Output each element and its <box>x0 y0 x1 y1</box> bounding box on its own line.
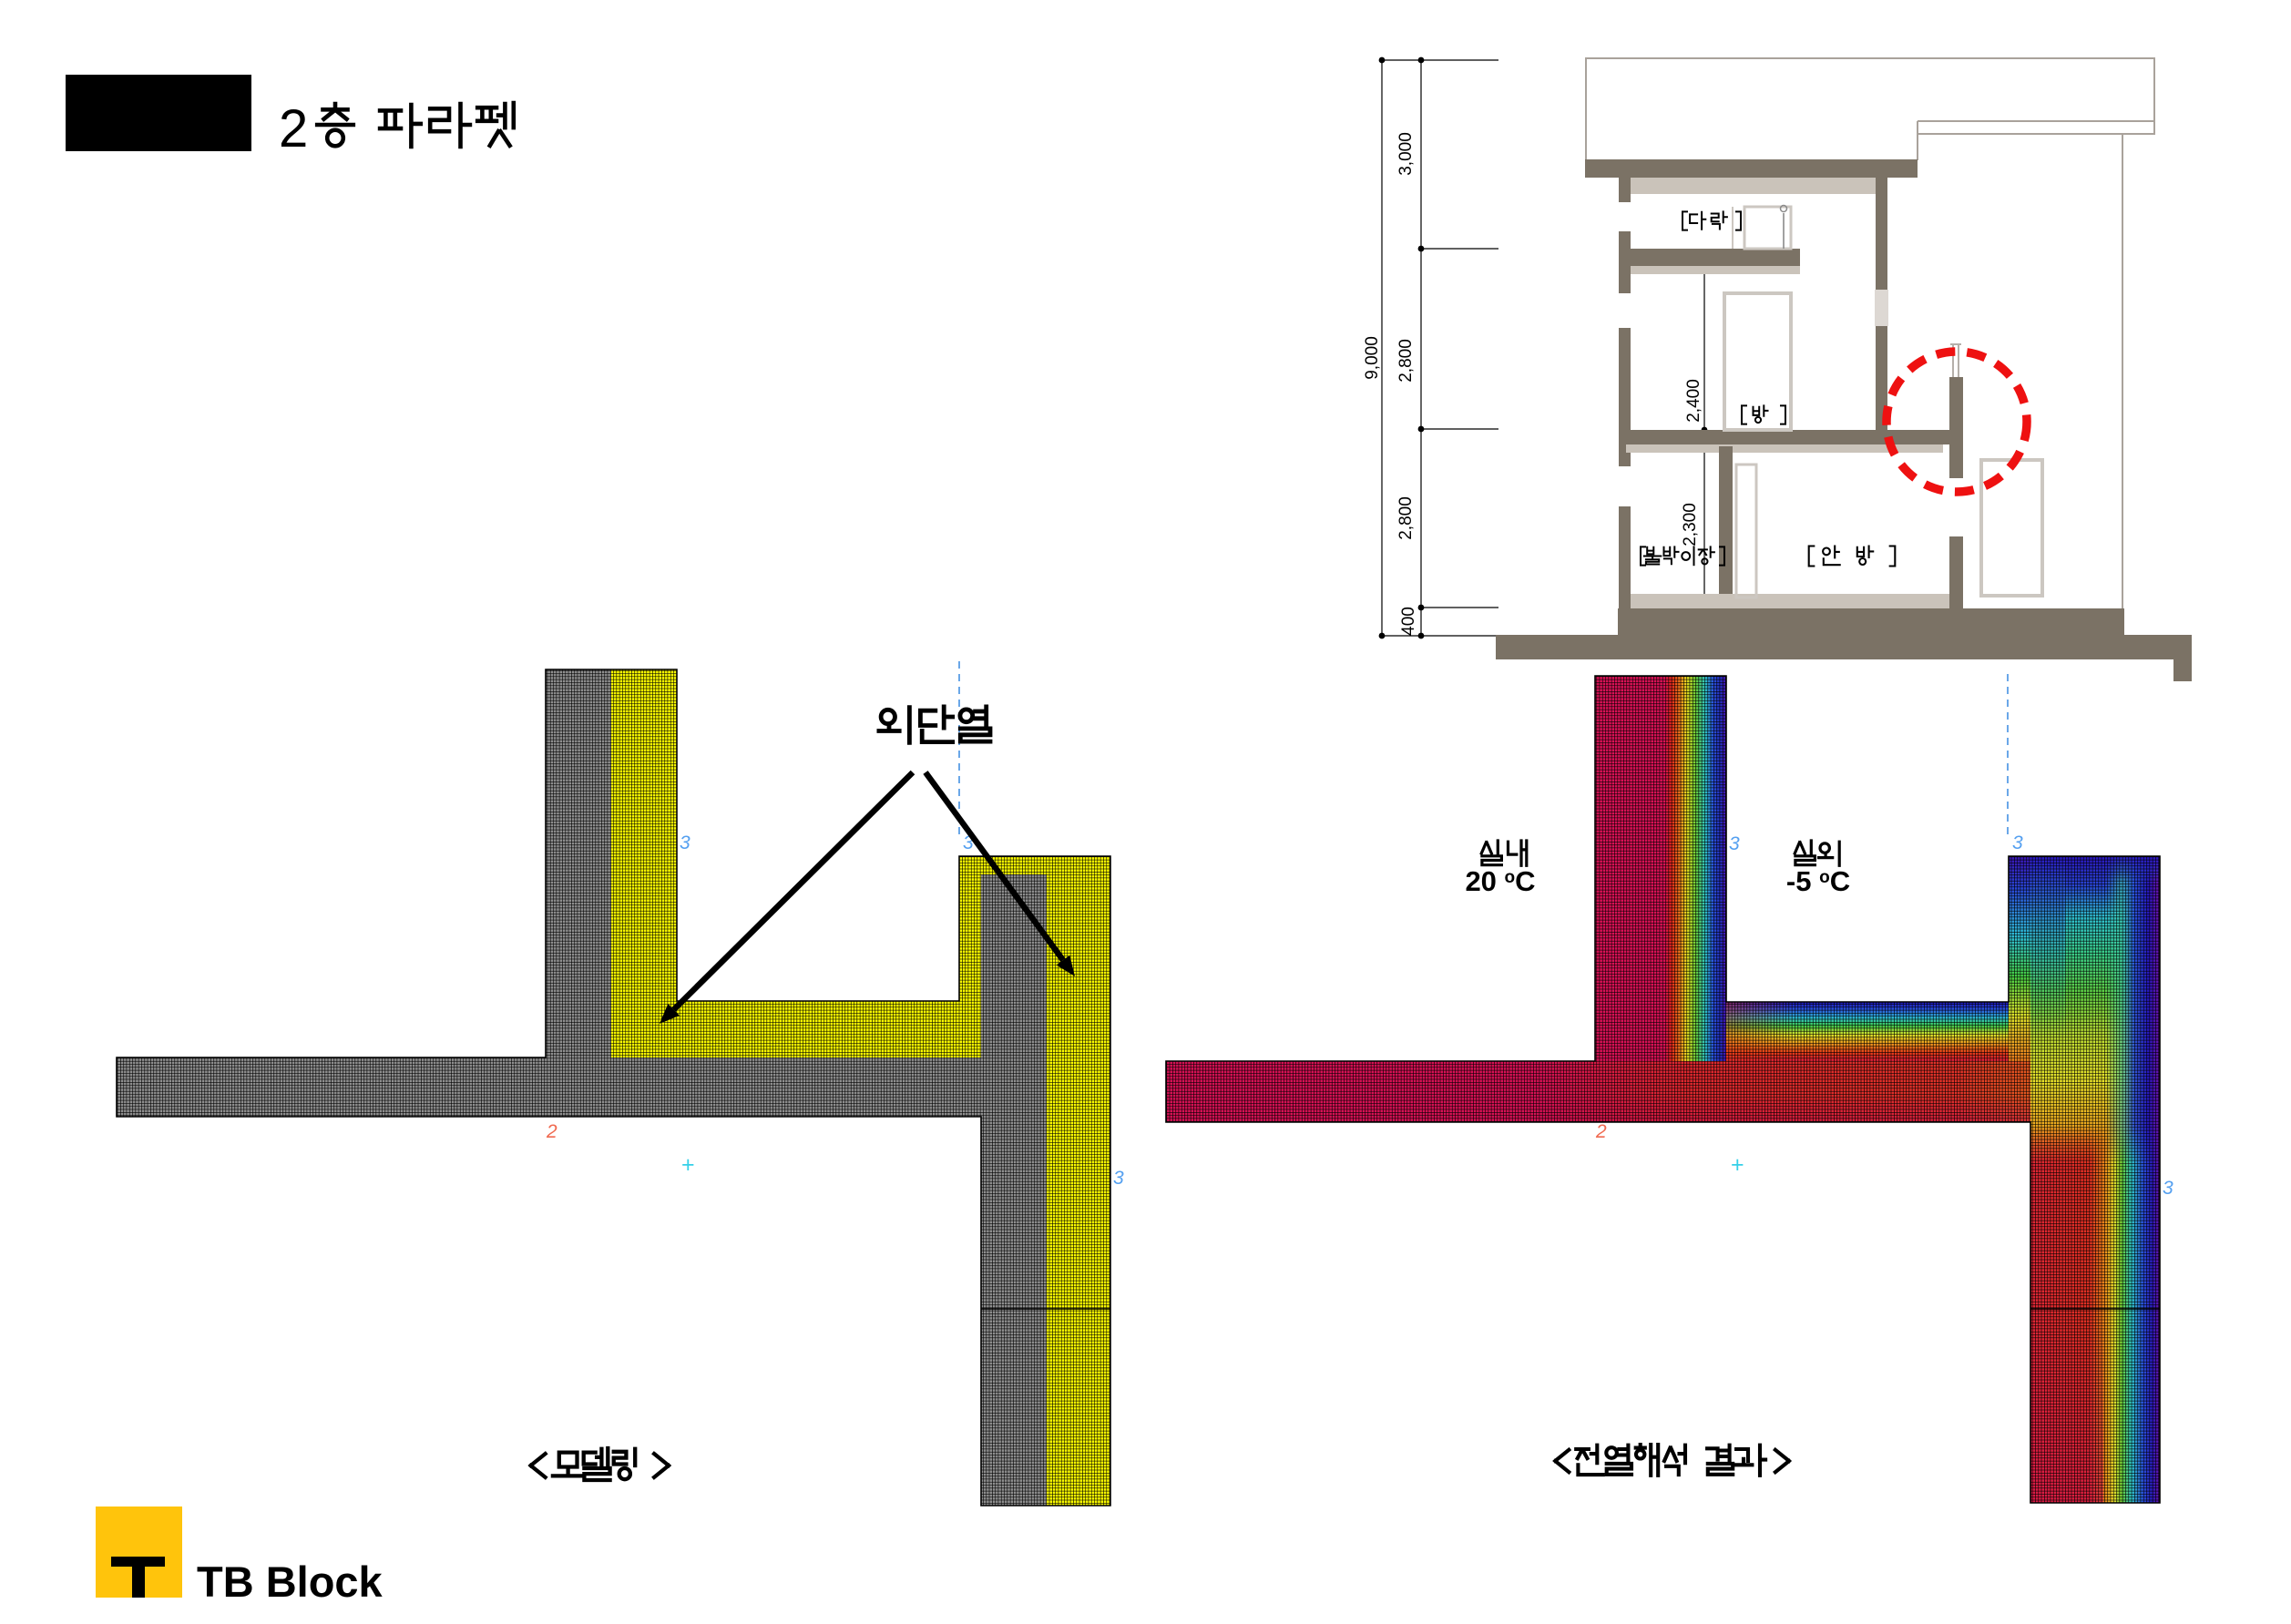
svg-text:TB Block: TB Block <box>197 1558 384 1606</box>
svg-text:3,000: 3,000 <box>1396 132 1416 176</box>
svg-text:-5 oC: -5 oC <box>1786 865 1850 897</box>
svg-text:3: 3 <box>1113 1168 1124 1189</box>
svg-text:2: 2 <box>1595 1121 1607 1142</box>
svg-text:3: 3 <box>680 832 690 853</box>
svg-text:+: + <box>1731 1152 1744 1178</box>
svg-text:2: 2 <box>546 1121 557 1142</box>
svg-text:400: 400 <box>1399 607 1418 636</box>
svg-text:2: 2 <box>279 99 308 158</box>
svg-text:2,400: 2,400 <box>1684 379 1703 423</box>
svg-text:+: + <box>681 1152 695 1178</box>
svg-text:2,300: 2,300 <box>1681 503 1700 546</box>
svg-text:9,000: 9,000 <box>1363 336 1382 380</box>
svg-text:3: 3 <box>2163 1178 2173 1199</box>
svg-text:3: 3 <box>1729 833 1740 854</box>
svg-text:20 oC: 20 oC <box>1465 865 1535 897</box>
svg-text:2,800: 2,800 <box>1396 496 1416 540</box>
svg-text:3: 3 <box>2012 832 2023 853</box>
svg-text:2,800: 2,800 <box>1396 339 1416 383</box>
